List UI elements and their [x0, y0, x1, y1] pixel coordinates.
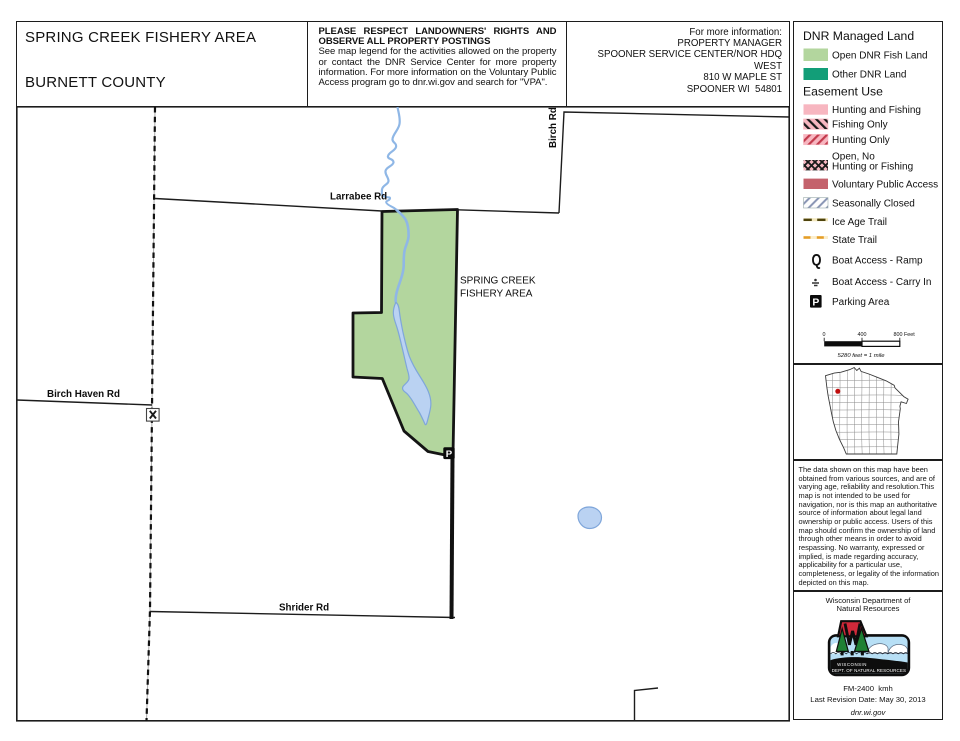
svg-text:Parking Area: Parking Area [832, 297, 890, 308]
svg-text:0: 0 [823, 332, 826, 338]
svg-text:Seasonally Closed: Seasonally Closed [832, 198, 915, 209]
svg-text:400: 400 [858, 332, 867, 338]
svg-text:P: P [812, 297, 819, 308]
svg-text:SPRING CREEK: SPRING CREEK [460, 276, 536, 287]
svg-text:Hunting Only: Hunting Only [832, 135, 890, 146]
svg-text:Fishing Only: Fishing Only [832, 120, 888, 131]
svg-text:State Trail: State Trail [832, 235, 877, 246]
svg-text:FISHERY AREA: FISHERY AREA [460, 289, 533, 300]
svg-text:Open DNR Fish Land: Open DNR Fish Land [832, 51, 928, 62]
svg-text:Other DNR Land: Other DNR Land [832, 70, 906, 81]
svg-text:DEPT. OF NATURAL RESOURCES: DEPT. OF NATURAL RESOURCES [832, 669, 906, 674]
svg-text:Shrider Rd: Shrider Rd [279, 603, 329, 614]
svg-text:Boat Access - Ramp: Boat Access - Ramp [832, 256, 923, 267]
svg-text:Easement Use: Easement Use [803, 85, 883, 99]
svg-text:Hunting or Fishing: Hunting or Fishing [832, 161, 913, 172]
svg-text:P: P [446, 449, 453, 460]
svg-text:WISCONSIN: WISCONSIN [837, 662, 867, 667]
svg-text:Larrabee Rd: Larrabee Rd [330, 192, 387, 203]
svg-text:DNR Managed Land: DNR Managed Land [803, 29, 914, 43]
svg-text:Voluntary Public Access: Voluntary Public Access [832, 179, 938, 190]
svg-text:Hunting and Fishing: Hunting and Fishing [832, 105, 921, 116]
svg-text:Birch Rd: Birch Rd [548, 107, 559, 148]
svg-text:Birch Haven Rd: Birch Haven Rd [47, 389, 120, 400]
svg-text:Ice Age Trail: Ice Age Trail [832, 217, 887, 228]
svg-text:Q: Q [812, 252, 822, 270]
svg-text:Boat Access - Carry In: Boat Access - Carry In [832, 277, 931, 288]
svg-text:5280 feet = 1 mile: 5280 feet = 1 mile [838, 353, 886, 359]
svg-text:800 Feet: 800 Feet [894, 332, 916, 338]
